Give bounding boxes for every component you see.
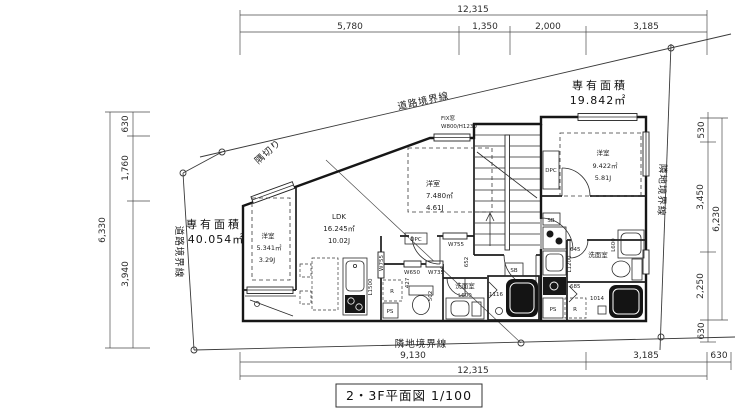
windows bbox=[247, 114, 649, 294]
bedroom-left-tatami: 3.29J bbox=[259, 256, 275, 264]
shoebox-right-label: SB bbox=[547, 218, 554, 224]
floorplan-svg: 12,315 5,780 1,350 2,000 3,185 9,130 3,1… bbox=[0, 0, 739, 413]
dim-top-total: 12,315 bbox=[457, 5, 489, 15]
drawing-title: 2・3F平面図 1/100 bbox=[346, 388, 472, 403]
washroom-right-name: 洗面室 bbox=[588, 250, 608, 259]
dim-left-seg-1: 630 bbox=[121, 115, 131, 132]
toilet-mid-bowl bbox=[413, 296, 430, 315]
dim-right-seg-3: 2,250 bbox=[696, 273, 706, 299]
bathtub-mid bbox=[506, 279, 538, 317]
road-boundary-left-label: 道路境界線 bbox=[173, 226, 185, 279]
dim-right-seg-1: 530 bbox=[697, 121, 707, 138]
unit-area-right: 専有面積 19.842㎡ bbox=[570, 78, 628, 107]
left-unit-area-value: 40.054㎡ bbox=[188, 233, 245, 246]
fridge-left-label: R bbox=[390, 289, 394, 295]
fridge-right-label: R bbox=[573, 307, 577, 313]
dim-top-seg-1: 5,780 bbox=[337, 22, 363, 32]
right-unit-area-caption: 専有面積 bbox=[572, 78, 628, 92]
bathtub-right bbox=[609, 285, 643, 318]
stove-right bbox=[543, 227, 566, 249]
room-bedroom-right: 洋室 9.422㎡ 5.81J bbox=[560, 133, 641, 196]
entry-door-right-unit bbox=[541, 218, 573, 250]
dining-chair-2 bbox=[300, 291, 311, 304]
window-w650-label: W650 bbox=[404, 270, 420, 276]
dim-right-total: 6,230 bbox=[712, 206, 722, 232]
toilet-right-bowl bbox=[612, 261, 630, 277]
washroom-mid-name: 洗面室 bbox=[455, 281, 475, 290]
corner-cut-label: 隅切り bbox=[253, 138, 284, 167]
bedroom-mid-area: 7.480㎡ bbox=[426, 192, 453, 200]
dim-685-label: 685 bbox=[570, 284, 581, 290]
dimension-top: 12,315 5,780 1,350 2,000 3,185 bbox=[240, 5, 707, 55]
shoebox-left-label: SB bbox=[510, 268, 517, 274]
washroom-right-opening bbox=[571, 238, 587, 243]
neighbor-boundary-bottom-label: 隣地境界線 bbox=[395, 338, 448, 350]
stair-divider bbox=[505, 135, 510, 250]
dpc-right-label: DPC bbox=[545, 168, 557, 174]
corridor-window-w755 bbox=[443, 233, 467, 239]
left-unit-area-caption: 専有面積 bbox=[186, 217, 242, 231]
washroom-mid-vanity: L600 bbox=[458, 293, 472, 299]
bedroom-right-name: 洋室 bbox=[597, 148, 611, 157]
balcony-left bbox=[245, 296, 296, 316]
fixture-labels: FIX窓 W800/H1230 L1500 L1200 W755 W755 W6… bbox=[368, 114, 617, 315]
dim-bottom-seg-3: 630 bbox=[710, 351, 727, 361]
bedroom-left-window bbox=[251, 182, 295, 204]
room-ldk: LDK 16.245㎡ 10.02J bbox=[323, 213, 355, 245]
toilet-window-w650 bbox=[404, 261, 421, 267]
balcony-drain-slope bbox=[250, 300, 293, 316]
dim-bottom-total: 12,315 bbox=[457, 366, 489, 376]
unit-area-left: 専有面積 40.054㎡ bbox=[186, 217, 244, 246]
fix-window-size-label: W800/H1230 bbox=[441, 124, 477, 130]
dim-left-seg-2: 1,760 bbox=[121, 155, 131, 181]
room-bedroom-left: 洋室 5.341㎡ 3.29J bbox=[252, 198, 290, 280]
bath-mid-size-label: 1116 bbox=[489, 292, 503, 298]
appliance-right bbox=[543, 277, 566, 295]
kitchen-left-size-label: L1500 bbox=[368, 278, 374, 296]
bedroom-left-name: 洋室 bbox=[262, 231, 276, 240]
dimension-right: 530 3,450 2,250 630 6,230 bbox=[696, 112, 728, 342]
right-unit-fixtures bbox=[543, 151, 644, 318]
bedroom-left-area: 5.341㎡ bbox=[256, 243, 282, 252]
dimension-bottom: 9,130 3,185 630 12,315 bbox=[240, 351, 731, 380]
vanity-right-counter bbox=[618, 230, 644, 258]
washroom-right-vanity: L600 bbox=[611, 238, 617, 252]
vanity-right-basin bbox=[621, 233, 641, 255]
ps-right-label: PS bbox=[550, 307, 557, 313]
dim-left-seg-3: 3,940 bbox=[121, 261, 131, 287]
dim-top-seg-2: 1,350 bbox=[472, 22, 498, 32]
dim-top-seg-4: 3,185 bbox=[633, 22, 659, 32]
bedroom-mid-name: 洋室 bbox=[426, 179, 440, 188]
neighbor-boundary-right-label: 隣地境界線 bbox=[655, 164, 669, 217]
toilet-right-tank bbox=[632, 259, 642, 280]
kitchen-left bbox=[300, 258, 367, 315]
dim-right-seg-2: 3,450 bbox=[696, 184, 706, 210]
right-unit-area-value: 19.842㎡ bbox=[570, 94, 627, 107]
dining-chair-1 bbox=[300, 264, 311, 277]
bedroom-right-door bbox=[562, 168, 590, 196]
fix-window-label: FIX窓 bbox=[441, 114, 456, 122]
dim-427-label: 427 bbox=[405, 277, 411, 288]
dimension-left: 630 1,760 3,940 6,330 bbox=[98, 112, 150, 348]
boundary-labels: 道路境界線 道路境界線 隣地境界線 隣地境界線 隅切り bbox=[173, 90, 669, 350]
road-boundary-top-label: 道路境界線 bbox=[396, 90, 450, 113]
room-bedroom-mid: 洋室 7.480㎡ 4.61J bbox=[408, 148, 492, 212]
dim-bottom-seg-2: 3,185 bbox=[633, 351, 659, 361]
kitchen-right-size-label: L1200 bbox=[567, 255, 573, 273]
sink-left bbox=[346, 261, 364, 291]
dining-table bbox=[312, 258, 338, 310]
window-w735-label: W735 bbox=[428, 270, 444, 276]
floor-plan-drawing: 12,315 5,780 1,350 2,000 3,185 9,130 3,1… bbox=[0, 0, 739, 413]
dim-right-seg-4: 630 bbox=[697, 322, 707, 339]
vanity-mid-basin bbox=[451, 301, 469, 316]
stairs bbox=[475, 135, 540, 250]
bedroom-right-area: 9.422㎡ bbox=[592, 161, 618, 170]
title-block: 2・3F平面図 1/100 bbox=[336, 384, 482, 407]
ps-left-label: PS bbox=[387, 309, 394, 315]
dpc-left-label: DPC bbox=[410, 237, 422, 243]
dim-652-label: 652 bbox=[464, 257, 470, 268]
window-w755a-label: W755 bbox=[448, 242, 464, 248]
dim-645-label: 645 bbox=[570, 247, 581, 253]
stove-left bbox=[345, 295, 365, 313]
dim-bottom-seg-1: 9,130 bbox=[400, 351, 426, 361]
window-w755b-label: W755 bbox=[379, 255, 385, 271]
dim-502-label: 502 bbox=[428, 291, 434, 302]
dim-top-seg-3: 2,000 bbox=[535, 22, 561, 32]
bedroom-right-tatami: 5.81J bbox=[595, 174, 611, 182]
ldk-name: LDK bbox=[332, 213, 346, 221]
bath-right-size-label: 1014 bbox=[590, 296, 604, 302]
ldk-tatami: 10.02J bbox=[328, 237, 350, 245]
ldk-area: 16.245㎡ bbox=[323, 225, 355, 233]
bedroom-mid-tatami: 4.61J bbox=[426, 204, 444, 212]
dim-left-total: 6,330 bbox=[98, 217, 108, 243]
